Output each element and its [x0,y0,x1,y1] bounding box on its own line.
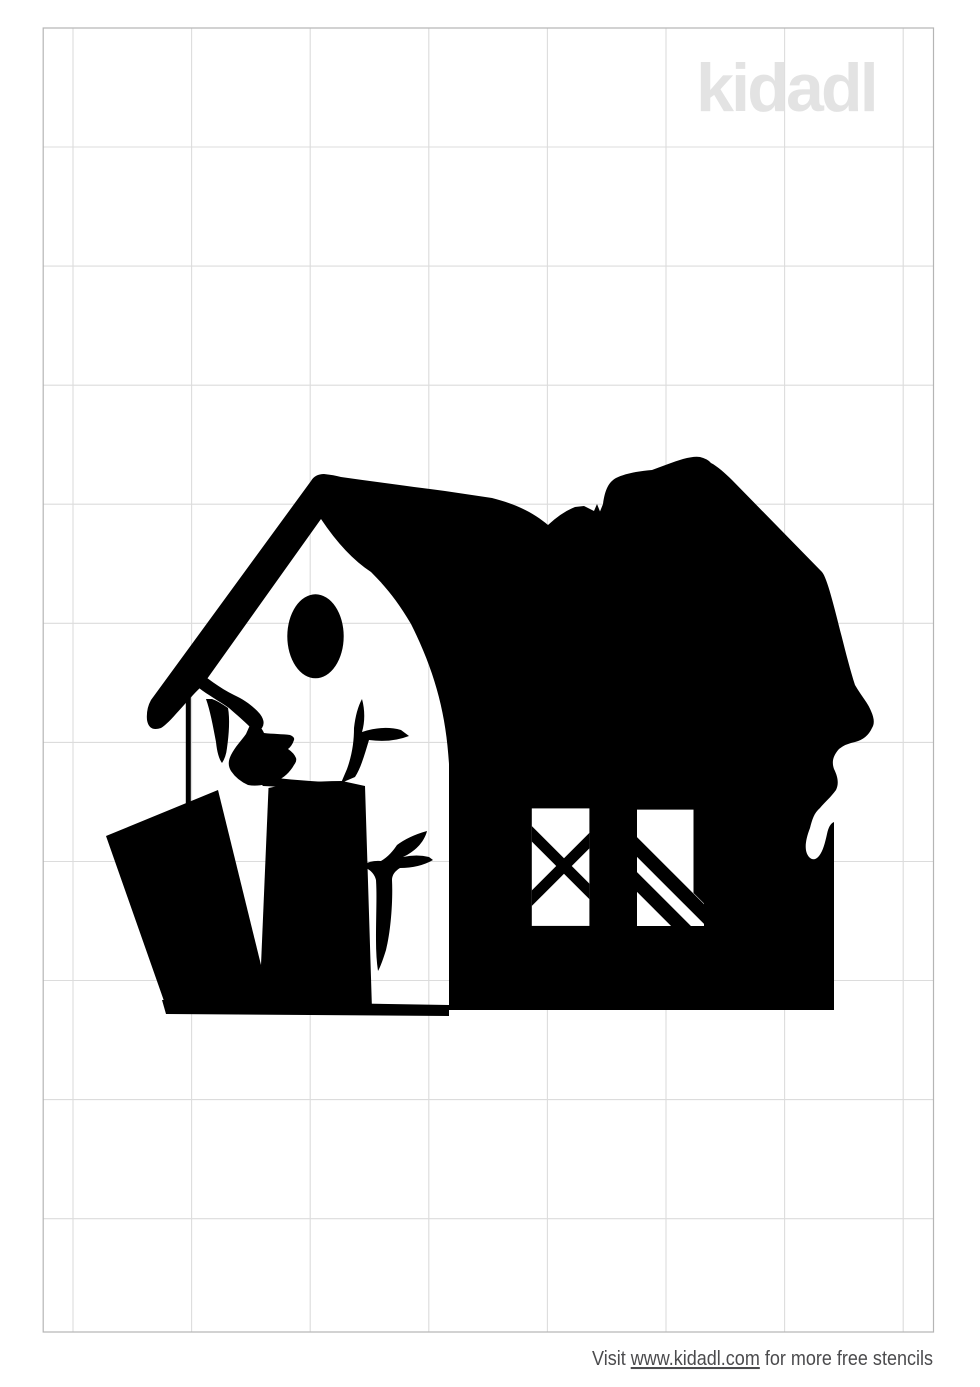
svg-text:kidadl: kidadl [696,50,876,126]
svg-text:Visit www.kidadl.com for more: Visit www.kidadl.com for more free stenc… [592,1347,933,1370]
